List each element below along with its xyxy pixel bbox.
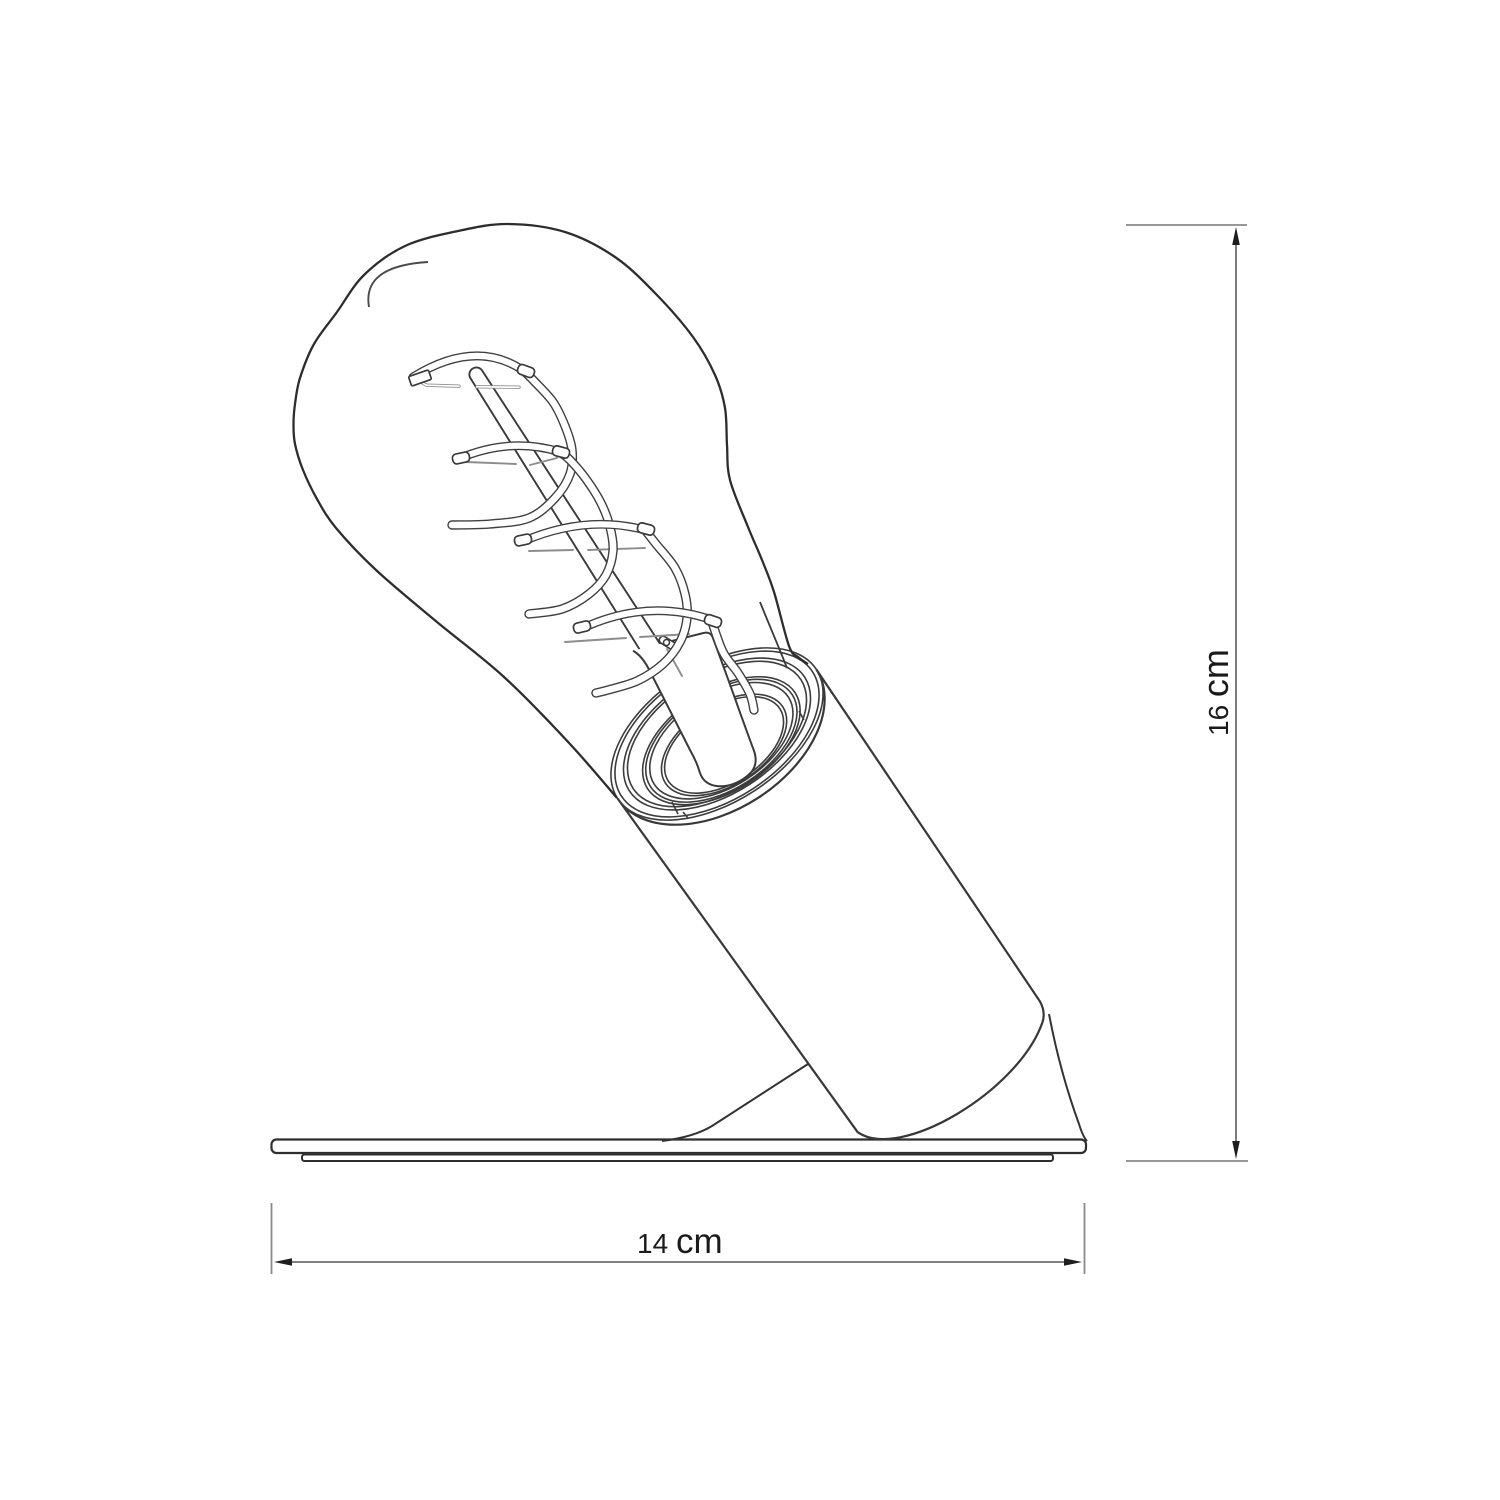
svg-text:14 cm: 14 cm bbox=[637, 1222, 723, 1261]
